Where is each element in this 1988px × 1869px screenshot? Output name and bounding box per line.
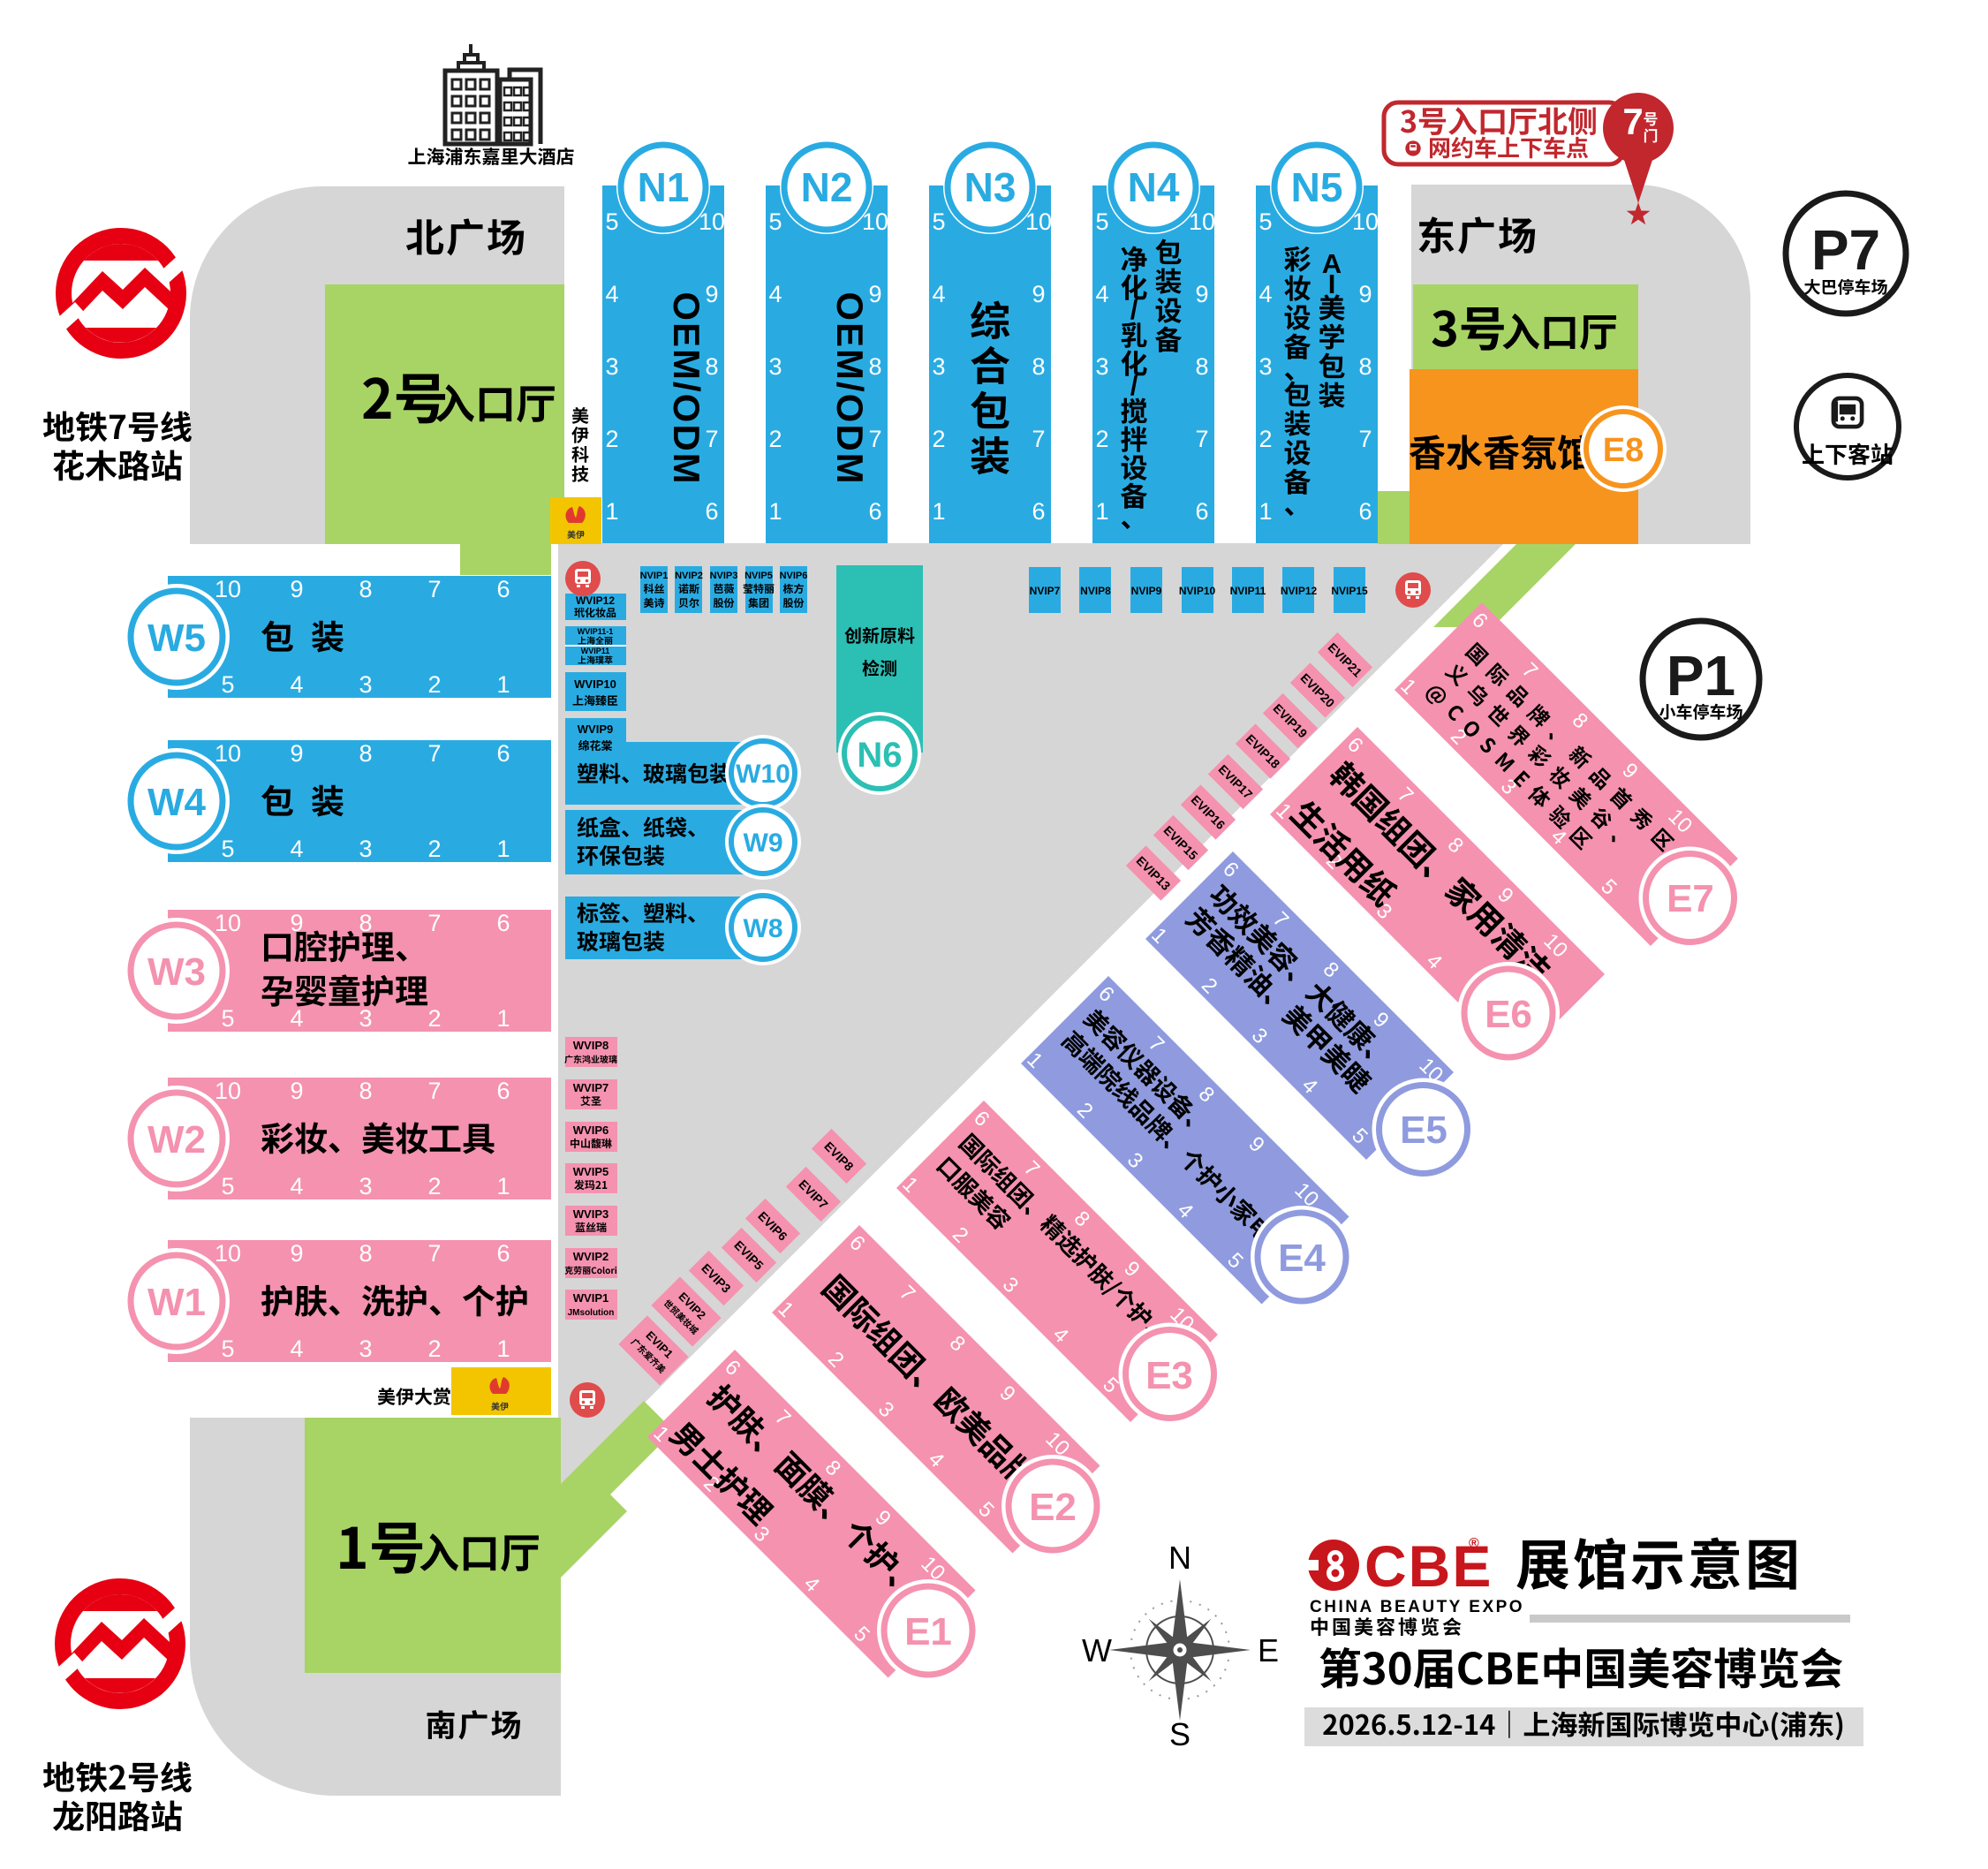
svg-text:7: 7 xyxy=(427,1078,441,1104)
svg-text:8: 8 xyxy=(359,740,372,767)
svg-text:2: 2 xyxy=(768,426,782,452)
svg-text:2: 2 xyxy=(427,671,441,698)
svg-text:1: 1 xyxy=(496,1005,510,1032)
svg-text:7: 7 xyxy=(1032,426,1045,452)
svg-text:JMsolution: JMsolution xyxy=(568,1308,615,1318)
svg-text:5: 5 xyxy=(221,1336,234,1362)
svg-text:NVIP2: NVIP2 xyxy=(675,571,703,581)
svg-text:E8: E8 xyxy=(1603,432,1644,469)
svg-text:W1: W1 xyxy=(147,1281,206,1324)
svg-text:5: 5 xyxy=(221,1005,234,1032)
svg-text:7: 7 xyxy=(427,740,441,767)
svg-text:N: N xyxy=(1168,1540,1191,1576)
svg-text:6: 6 xyxy=(496,1078,510,1104)
svg-text:8: 8 xyxy=(1032,353,1045,380)
svg-text:NVIP7: NVIP7 xyxy=(1030,585,1061,597)
svg-text:E5: E5 xyxy=(1400,1109,1448,1152)
svg-text:9: 9 xyxy=(290,1078,303,1104)
svg-text:6: 6 xyxy=(1195,498,1208,525)
svg-text:8: 8 xyxy=(1195,353,1208,380)
svg-text:1: 1 xyxy=(605,498,618,525)
svg-text:6: 6 xyxy=(496,576,510,602)
svg-text:9: 9 xyxy=(290,576,303,602)
svg-text:N6: N6 xyxy=(857,736,902,775)
svg-text:2: 2 xyxy=(932,426,945,452)
svg-text:9: 9 xyxy=(1358,281,1372,307)
svg-text:3: 3 xyxy=(359,1005,372,1032)
svg-text:8: 8 xyxy=(359,910,372,936)
svg-text:3: 3 xyxy=(359,836,372,862)
svg-text:3: 3 xyxy=(1259,353,1272,380)
svg-text:3: 3 xyxy=(605,353,618,380)
svg-text:3: 3 xyxy=(359,1336,372,1362)
svg-text:W3: W3 xyxy=(147,950,206,994)
svg-text:NVIP11: NVIP11 xyxy=(1230,585,1266,597)
svg-text:10: 10 xyxy=(215,1078,241,1104)
svg-text:WVIP11: WVIP11 xyxy=(581,647,610,655)
svg-text:6: 6 xyxy=(496,910,510,936)
svg-text:6: 6 xyxy=(705,498,718,525)
svg-text:7: 7 xyxy=(1195,426,1208,452)
svg-text:5: 5 xyxy=(221,836,234,862)
svg-text:P1: P1 xyxy=(1667,644,1735,707)
svg-text:WVIP1: WVIP1 xyxy=(573,1291,608,1305)
svg-text:4: 4 xyxy=(290,1173,303,1199)
svg-text:10: 10 xyxy=(215,740,241,767)
svg-text:5: 5 xyxy=(605,208,618,235)
svg-text:4: 4 xyxy=(290,1336,303,1362)
svg-text:5: 5 xyxy=(932,208,945,235)
svg-text:5: 5 xyxy=(1095,208,1108,235)
svg-text:5: 5 xyxy=(221,671,234,698)
svg-text:/: / xyxy=(1130,294,1138,325)
svg-text:OEM/ODM: OEM/ODM xyxy=(829,291,871,485)
svg-text:1: 1 xyxy=(496,1173,510,1199)
svg-text:W: W xyxy=(1082,1632,1112,1668)
svg-text:N4: N4 xyxy=(1128,164,1180,210)
svg-text:7: 7 xyxy=(427,910,441,936)
svg-text:9: 9 xyxy=(290,740,303,767)
svg-text:WVIP7: WVIP7 xyxy=(573,1081,608,1094)
svg-text:®: ® xyxy=(1469,1536,1479,1551)
svg-text:WVIP2: WVIP2 xyxy=(573,1250,608,1263)
svg-text:NVIP12: NVIP12 xyxy=(1281,585,1318,597)
svg-text:NVIP8: NVIP8 xyxy=(1080,585,1111,597)
svg-text:W9: W9 xyxy=(744,829,783,858)
svg-text:4: 4 xyxy=(290,1005,303,1032)
svg-text:4: 4 xyxy=(1095,281,1108,307)
svg-text:1: 1 xyxy=(496,836,510,862)
svg-text:8: 8 xyxy=(359,576,372,602)
svg-text:9: 9 xyxy=(1032,281,1045,307)
svg-text:OEM/ODM: OEM/ODM xyxy=(666,291,707,485)
svg-text:7: 7 xyxy=(427,576,441,602)
svg-text:3: 3 xyxy=(1095,353,1108,380)
svg-text:5: 5 xyxy=(221,1173,234,1199)
svg-text:WVIP9: WVIP9 xyxy=(578,723,613,736)
svg-text:2: 2 xyxy=(427,1005,441,1032)
svg-text:E3: E3 xyxy=(1145,1354,1193,1397)
svg-text:2: 2 xyxy=(427,1173,441,1199)
svg-text:WVIP11-1: WVIP11-1 xyxy=(578,627,614,636)
svg-text:6: 6 xyxy=(1358,498,1372,525)
svg-text:2: 2 xyxy=(427,1336,441,1362)
svg-text:WVIP8: WVIP8 xyxy=(573,1039,608,1052)
svg-text:2: 2 xyxy=(427,836,441,862)
svg-text:NVIP9: NVIP9 xyxy=(1131,585,1162,597)
svg-text:N2: N2 xyxy=(801,164,853,210)
svg-text:3: 3 xyxy=(768,353,782,380)
svg-text:4: 4 xyxy=(932,281,945,307)
svg-text:W10: W10 xyxy=(736,760,790,789)
svg-text:1: 1 xyxy=(768,498,782,525)
svg-text:I: I xyxy=(1328,269,1336,299)
svg-text:WVIP3: WVIP3 xyxy=(573,1207,608,1221)
svg-text:N3: N3 xyxy=(964,164,1017,210)
svg-text:W5: W5 xyxy=(147,617,206,660)
svg-text:3: 3 xyxy=(359,1173,372,1199)
svg-text:8: 8 xyxy=(1358,353,1372,380)
svg-text:5: 5 xyxy=(768,208,782,235)
svg-text:WVIP12: WVIP12 xyxy=(576,594,615,607)
svg-text:E7: E7 xyxy=(1667,877,1714,920)
svg-text:NVIP1: NVIP1 xyxy=(640,571,669,581)
svg-text:WVIP10: WVIP10 xyxy=(574,677,616,691)
svg-text:E4: E4 xyxy=(1278,1237,1326,1280)
svg-text:6: 6 xyxy=(496,740,510,767)
svg-text:E: E xyxy=(1258,1632,1279,1668)
svg-text:WVIP6: WVIP6 xyxy=(573,1124,608,1137)
svg-text:7: 7 xyxy=(1622,101,1643,142)
svg-text:5: 5 xyxy=(1259,208,1272,235)
svg-text:1: 1 xyxy=(496,1336,510,1362)
svg-text:10: 10 xyxy=(215,910,241,936)
svg-text:E2: E2 xyxy=(1029,1486,1077,1529)
svg-text:6: 6 xyxy=(1032,498,1045,525)
svg-text:1: 1 xyxy=(1259,498,1272,525)
svg-text:NVIP3: NVIP3 xyxy=(710,571,738,581)
svg-text:E1: E1 xyxy=(904,1610,952,1653)
svg-text:3: 3 xyxy=(359,671,372,698)
svg-text:/: / xyxy=(1130,370,1138,401)
svg-text:NVIP5: NVIP5 xyxy=(745,571,773,581)
svg-text:NVIP15: NVIP15 xyxy=(1331,585,1368,597)
svg-text:P7: P7 xyxy=(1811,218,1880,282)
svg-text:E6: E6 xyxy=(1485,993,1532,1036)
svg-text:8: 8 xyxy=(359,1078,372,1104)
svg-text:4: 4 xyxy=(290,671,303,698)
svg-text:2: 2 xyxy=(605,426,618,452)
svg-text:N5: N5 xyxy=(1291,164,1343,210)
svg-text:N1: N1 xyxy=(638,164,690,210)
svg-text:9: 9 xyxy=(1195,281,1208,307)
svg-text:4: 4 xyxy=(1259,281,1272,307)
svg-text:6: 6 xyxy=(868,498,881,525)
svg-text:NVIP10: NVIP10 xyxy=(1179,585,1216,597)
svg-text:W4: W4 xyxy=(147,781,207,824)
svg-text:7: 7 xyxy=(1358,426,1372,452)
svg-text:8: 8 xyxy=(359,1240,372,1267)
svg-text:4: 4 xyxy=(605,281,618,307)
svg-text:W8: W8 xyxy=(744,914,783,943)
svg-text:1: 1 xyxy=(496,671,510,698)
svg-text:WVIP5: WVIP5 xyxy=(573,1165,608,1178)
svg-text:10: 10 xyxy=(215,1240,241,1267)
svg-text:CHINA BEAUTY EXPO: CHINA BEAUTY EXPO xyxy=(1310,1598,1524,1616)
svg-text:NVIP6: NVIP6 xyxy=(780,571,808,581)
svg-text:7: 7 xyxy=(427,1240,441,1267)
svg-text:3: 3 xyxy=(932,353,945,380)
svg-text:10: 10 xyxy=(215,576,241,602)
svg-text:W2: W2 xyxy=(147,1118,206,1162)
svg-text:2: 2 xyxy=(1095,426,1108,452)
svg-text:6: 6 xyxy=(496,1240,510,1267)
svg-text:9: 9 xyxy=(290,1240,303,1267)
svg-text:4: 4 xyxy=(290,836,303,862)
svg-text:2: 2 xyxy=(1259,426,1272,452)
svg-text:1: 1 xyxy=(1095,498,1108,525)
svg-text:4: 4 xyxy=(768,281,782,307)
svg-text:1: 1 xyxy=(932,498,945,525)
svg-text:S: S xyxy=(1169,1716,1191,1752)
